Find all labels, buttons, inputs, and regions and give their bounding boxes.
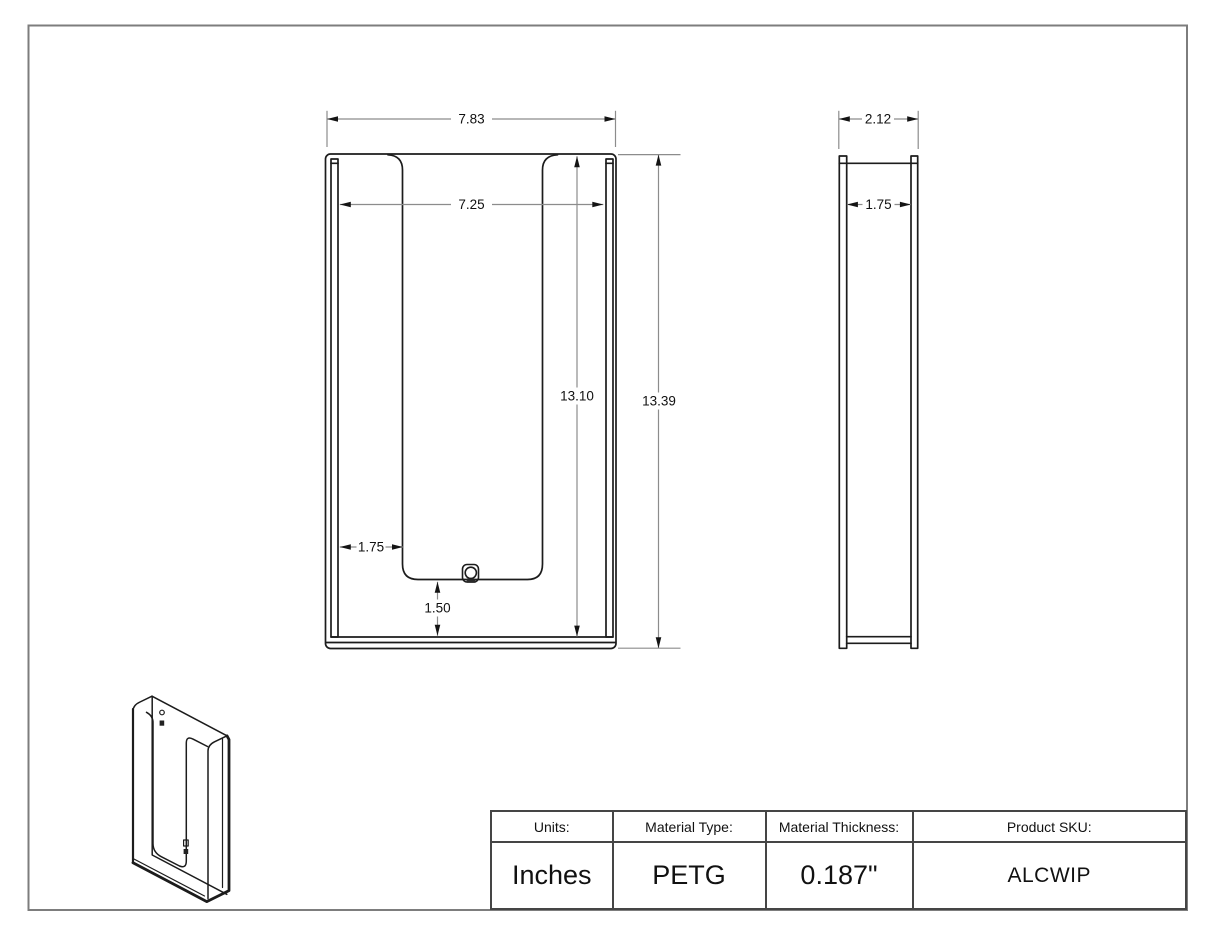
side-view: [839, 156, 917, 648]
iso-u-slot: [147, 712, 208, 866]
product-sku-header: Product SKU:: [914, 812, 1186, 843]
product-sku-value: ALCWIP: [914, 843, 1186, 908]
drawing-canvas: 7.83 7.25 13.10 13.39 1.75 1.50 2.12 1.7…: [0, 0, 1214, 939]
dim-side-inner-depth: 1.75: [865, 197, 891, 212]
side-front-wall: [839, 156, 846, 648]
isometric-view: [133, 696, 229, 901]
title-block-table: Units: Material Type: Material Thickness…: [490, 810, 1187, 910]
dim-front-bottom-inset: 1.50: [424, 601, 450, 616]
iso-bottom-right-silhouette: [133, 736, 229, 902]
material-type-header: Material Type:: [614, 812, 767, 843]
front-left-wall-edge: [331, 159, 338, 637]
front-view-dim-arrows: [327, 116, 661, 648]
front-u-slot-outline: [388, 155, 558, 580]
dim-front-inner-height: 13.10: [560, 389, 594, 404]
dim-front-outer-height: 13.39: [642, 394, 676, 409]
front-view-dimensions: [327, 111, 681, 648]
side-view-dim-arrows: [839, 116, 918, 207]
dim-side-outer-depth: 2.12: [865, 112, 891, 127]
side-back-wall: [911, 156, 918, 648]
material-thickness-value: 0.187": [767, 843, 914, 908]
dim-front-side-inset: 1.75: [358, 540, 384, 555]
dim-front-inner-width: 7.25: [458, 197, 484, 212]
material-thickness-header: Material Thickness:: [767, 812, 914, 843]
drawing-sheet: { "drawing": { "front_view": { "outer_wi…: [0, 0, 1214, 939]
iso-keyhole-top: [160, 710, 165, 726]
dim-front-outer-width: 7.83: [458, 112, 484, 127]
units-header: Units:: [492, 812, 614, 843]
material-type-value: PETG: [614, 843, 767, 908]
front-right-wall-edge: [606, 159, 613, 637]
units-value: Inches: [492, 843, 614, 908]
